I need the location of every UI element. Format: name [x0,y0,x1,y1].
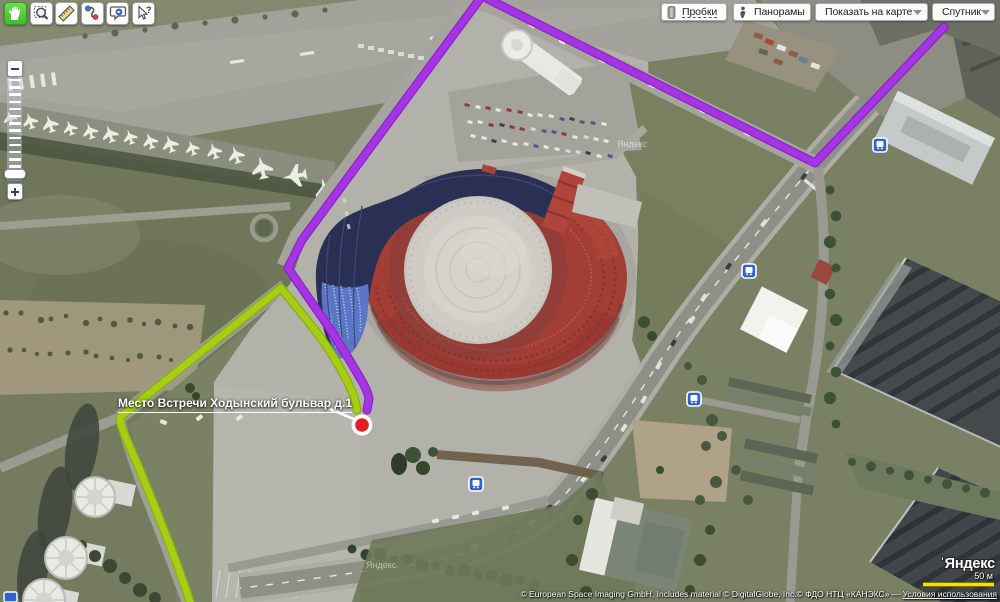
svg-text:Яндекс: Яндекс [617,139,648,149]
svg-text:Яндекс: Яндекс [366,560,397,570]
svg-text:?: ? [146,5,152,15]
